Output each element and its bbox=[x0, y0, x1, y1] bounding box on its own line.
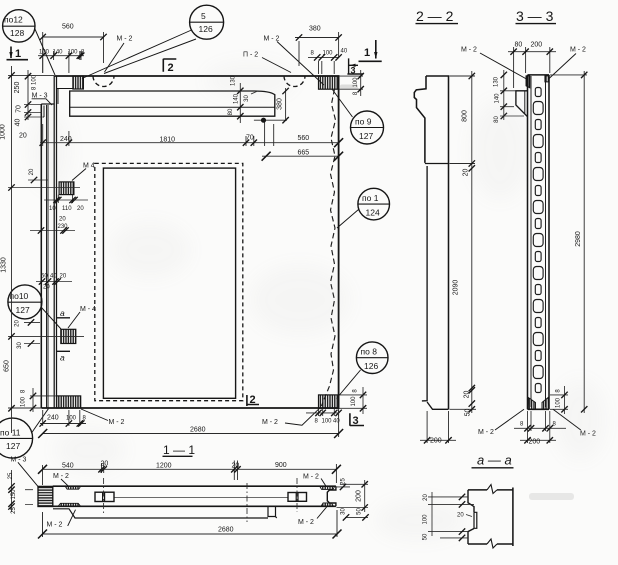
svg-text:1810: 1810 bbox=[160, 137, 176, 144]
svg-text:126: 126 bbox=[199, 24, 213, 34]
svg-text:50: 50 bbox=[357, 508, 363, 515]
svg-text:2980: 2980 bbox=[575, 231, 582, 247]
svg-text:200: 200 bbox=[529, 439, 541, 446]
svg-text:1200: 1200 bbox=[156, 463, 172, 470]
svg-text:по10: по10 bbox=[10, 291, 29, 301]
svg-text:3 — 3: 3 — 3 bbox=[516, 8, 554, 24]
svg-text:М - 2: М - 2 bbox=[303, 473, 319, 480]
svg-text:124: 124 bbox=[366, 208, 380, 218]
svg-text:200: 200 bbox=[356, 490, 363, 502]
svg-text:128: 128 bbox=[10, 28, 24, 38]
svg-text:560: 560 bbox=[298, 135, 310, 142]
svg-text:127: 127 bbox=[16, 305, 30, 315]
svg-text:20: 20 bbox=[19, 133, 27, 140]
svg-text:М - 2: М - 2 bbox=[478, 429, 494, 436]
svg-text:5: 5 bbox=[201, 11, 206, 21]
svg-text:3: 3 bbox=[351, 66, 356, 76]
svg-text:1 — 1: 1 — 1 bbox=[163, 443, 195, 457]
svg-text:20: 20 bbox=[77, 206, 84, 212]
svg-text:М - 3: М - 3 bbox=[11, 456, 27, 463]
svg-text:П - 2: П - 2 bbox=[243, 52, 258, 59]
svg-text:М - 2: М - 2 bbox=[117, 36, 133, 43]
svg-text:20: 20 bbox=[464, 391, 471, 399]
svg-text:200: 200 bbox=[531, 42, 543, 49]
svg-text:560: 560 bbox=[62, 24, 74, 31]
svg-text:150: 150 bbox=[11, 489, 17, 500]
svg-text:1: 1 bbox=[364, 47, 370, 59]
svg-text:по 11: по 11 bbox=[0, 428, 21, 438]
svg-text:110: 110 bbox=[62, 206, 72, 212]
svg-text:2680: 2680 bbox=[190, 427, 206, 434]
svg-text:по 8: по 8 bbox=[361, 347, 378, 357]
svg-text:2680: 2680 bbox=[218, 527, 234, 534]
svg-text:10: 10 bbox=[49, 206, 56, 212]
svg-text:665: 665 bbox=[298, 150, 310, 157]
svg-text:20: 20 bbox=[59, 217, 66, 223]
svg-text:127: 127 bbox=[6, 441, 20, 451]
svg-text:126: 126 bbox=[364, 361, 378, 371]
svg-text:3: 3 bbox=[353, 415, 359, 427]
svg-text:230: 230 bbox=[58, 224, 69, 230]
svg-text:100: 100 bbox=[66, 416, 77, 422]
svg-text:30: 30 bbox=[17, 342, 23, 349]
svg-text:а: а bbox=[60, 353, 65, 363]
svg-text:2090: 2090 bbox=[453, 280, 460, 296]
svg-text:по 9: по 9 bbox=[355, 117, 372, 127]
svg-text:70: 70 bbox=[16, 105, 23, 113]
svg-text:по12: по12 bbox=[4, 15, 23, 25]
svg-text:20: 20 bbox=[423, 494, 429, 501]
svg-text:250: 250 bbox=[14, 82, 21, 94]
svg-text:650: 650 bbox=[4, 360, 11, 372]
svg-text:2: 2 bbox=[250, 394, 256, 406]
svg-text:240: 240 bbox=[47, 415, 59, 422]
svg-text:30: 30 bbox=[341, 508, 347, 515]
svg-text:М - 4: М - 4 bbox=[80, 306, 96, 313]
svg-text:100: 100 bbox=[351, 396, 357, 407]
svg-text:20: 20 bbox=[232, 463, 240, 470]
svg-text:20: 20 bbox=[60, 274, 67, 280]
svg-text:80: 80 bbox=[228, 108, 234, 115]
svg-text:800: 800 bbox=[462, 110, 469, 122]
svg-text:20: 20 bbox=[463, 169, 470, 177]
svg-text:25: 25 bbox=[8, 472, 14, 479]
svg-text:127: 127 bbox=[359, 131, 373, 141]
svg-text:а — а: а — а bbox=[477, 453, 512, 468]
svg-text:100: 100 bbox=[32, 74, 38, 85]
svg-text:М - 2: М - 2 bbox=[461, 47, 477, 54]
svg-text:100: 100 bbox=[68, 50, 79, 56]
svg-text:25: 25 bbox=[341, 478, 347, 485]
svg-text:80: 80 bbox=[515, 42, 523, 49]
svg-text:М - 2: М - 2 bbox=[570, 47, 586, 54]
svg-text:100: 100 bbox=[21, 396, 27, 407]
svg-text:1330: 1330 bbox=[1, 257, 8, 273]
svg-text:200: 200 bbox=[430, 438, 442, 445]
svg-text:130: 130 bbox=[494, 76, 500, 87]
svg-text:2 — 2: 2 — 2 bbox=[416, 8, 454, 24]
svg-text:50: 50 bbox=[41, 274, 48, 280]
svg-text:380: 380 bbox=[277, 98, 284, 110]
svg-text:70: 70 bbox=[246, 134, 254, 141]
svg-text:М - 2: М - 2 bbox=[47, 521, 63, 528]
svg-text:20: 20 bbox=[15, 320, 21, 327]
svg-text:а: а bbox=[60, 308, 65, 318]
svg-text:по 1: по 1 bbox=[362, 193, 379, 203]
svg-text:40: 40 bbox=[333, 418, 340, 424]
svg-text:900: 900 bbox=[275, 462, 287, 469]
svg-text:М - 2: М - 2 bbox=[298, 519, 314, 526]
svg-text:40: 40 bbox=[15, 119, 22, 127]
svg-text:140: 140 bbox=[53, 50, 64, 56]
svg-text:1: 1 bbox=[15, 48, 21, 60]
svg-text:М - 2: М - 2 bbox=[109, 419, 125, 426]
svg-text:2: 2 bbox=[168, 62, 174, 74]
svg-text:380: 380 bbox=[309, 26, 321, 33]
svg-text:40: 40 bbox=[50, 274, 57, 280]
svg-text:1000: 1000 bbox=[0, 124, 7, 140]
svg-text:25: 25 bbox=[11, 507, 17, 514]
svg-text:20: 20 bbox=[43, 285, 50, 291]
svg-text:50: 50 bbox=[465, 409, 472, 417]
svg-text:100: 100 bbox=[322, 418, 333, 424]
svg-text:40: 40 bbox=[341, 49, 348, 55]
svg-text:М - 2: М - 2 bbox=[262, 419, 278, 426]
svg-text:М 4: М 4 bbox=[83, 163, 95, 170]
svg-text:100: 100 bbox=[323, 51, 334, 57]
